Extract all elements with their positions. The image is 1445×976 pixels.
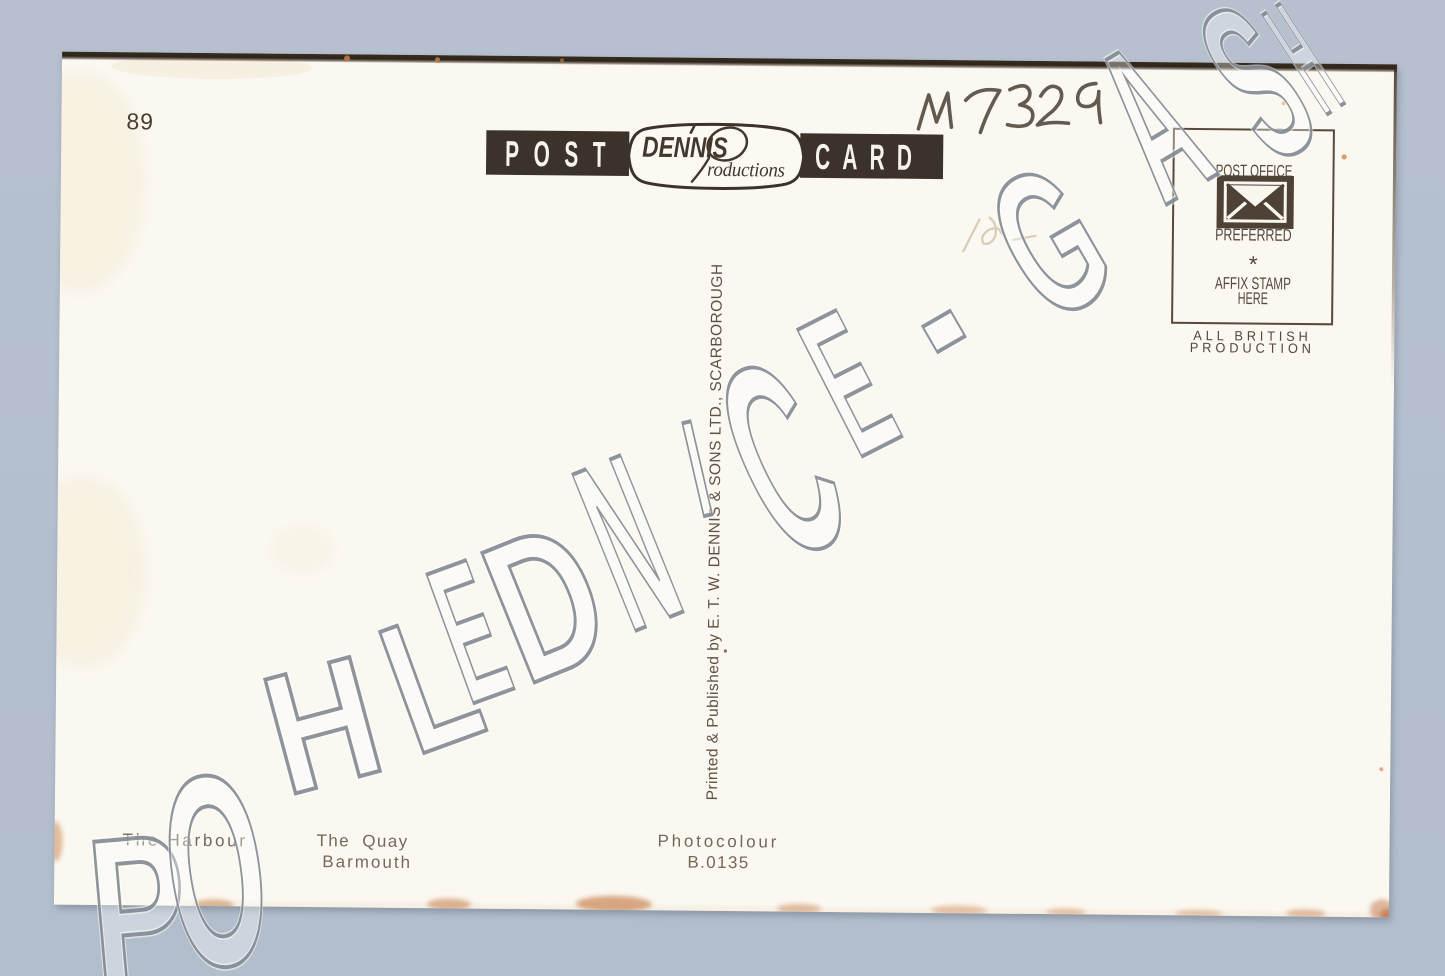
svg-text:H: H [246,619,399,831]
svg-text:G: G [956,121,1146,364]
svg-text:I: I [672,392,723,547]
